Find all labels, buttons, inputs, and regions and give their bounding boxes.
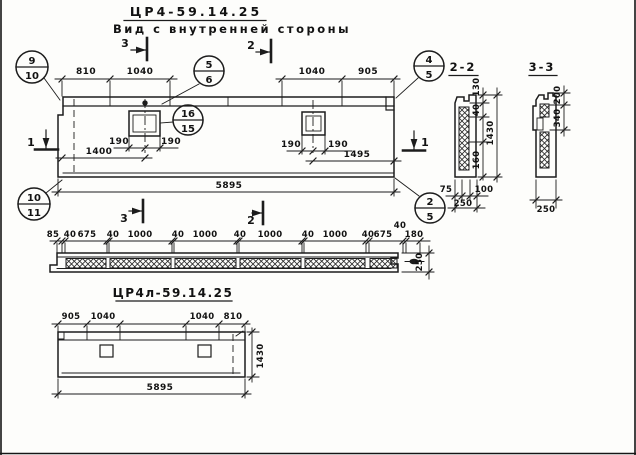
section-3-3-insulation-top <box>540 104 549 117</box>
svg-text:9: 9 <box>29 56 36 67</box>
svg-text:2: 2 <box>247 214 255 227</box>
callout-4-5: 4 5 <box>396 51 444 98</box>
svg-text:10: 10 <box>25 71 39 82</box>
dim-1000: 1000 <box>193 230 218 240</box>
dim-1000: 1000 <box>258 230 283 240</box>
dim-100: 100 <box>475 185 494 195</box>
dim-40: 40 <box>362 230 374 240</box>
dim-40: 40 <box>172 230 184 240</box>
dim-5895: 5895 <box>147 383 174 393</box>
dim-40: 40 <box>64 230 76 240</box>
dim-5895: 5895 <box>216 181 243 191</box>
drawing-sheet: ЦР4-59.14.25 Вид с внутренней стороны 81… <box>0 0 636 455</box>
dim-1040: 1040 <box>127 67 154 77</box>
dim-1040: 1040 <box>190 312 215 322</box>
dim-1040: 1040 <box>91 312 116 322</box>
view-label: Вид с внутренней стороны <box>113 22 351 36</box>
bottom-view-code: ЦР4л-59.14.25 <box>113 286 234 300</box>
svg-text:2: 2 <box>427 197 434 208</box>
bottom-panel-corner-notch <box>58 333 64 339</box>
dim-160: 160 <box>472 151 482 170</box>
dim-250: 250 <box>537 205 556 215</box>
dim-1495: 1495 <box>344 150 371 160</box>
top-dim-extensions <box>62 81 394 97</box>
panel-right-notch <box>386 97 394 110</box>
dim-250: 250 <box>415 253 425 272</box>
svg-text:5: 5 <box>427 212 434 223</box>
callout-2-5: 2 5 <box>395 178 445 223</box>
section-mark-1-right: 1 <box>403 131 429 151</box>
dim-85: 85 <box>47 230 59 240</box>
section-mark-1-left: 1 <box>27 130 58 150</box>
section-2-2-insulation <box>459 107 469 170</box>
dim-string-extensions <box>57 243 420 253</box>
dim-190: 190 <box>109 137 129 147</box>
section-mark-2-bottom: 2 <box>247 202 263 227</box>
callout-16-15: 16 15 <box>160 105 203 135</box>
section-mark-3-bottom: 3 <box>120 200 143 225</box>
bottom-panel-joints <box>87 332 219 340</box>
title-block: ЦР4-59.14.25 Вид с внутренней стороны <box>113 4 351 36</box>
main-elevation-view: 810 1040 1040 905 190 190 190 190 1400 1… <box>16 37 445 227</box>
bottom-dim-extensions <box>58 326 245 332</box>
dim-675: 675 <box>374 230 393 240</box>
bottom-opening-1 <box>100 345 113 357</box>
dim-180: 180 <box>405 230 424 240</box>
plan-strip-view: 250 <box>50 246 434 279</box>
section-3-3-title: 3-3 <box>529 60 556 74</box>
section-mark-2-top: 2 <box>247 39 271 62</box>
panel-code-title: ЦР4-59.14.25 <box>130 4 262 19</box>
dim-190: 190 <box>328 140 348 150</box>
dim-200: 200 <box>553 86 563 105</box>
insulation-block <box>240 259 301 269</box>
dim-1000: 1000 <box>323 230 348 240</box>
svg-text:16: 16 <box>181 109 195 120</box>
plan-dim-string: 85 40 675 40 1000 40 1000 40 1000 40 100… <box>47 221 430 253</box>
svg-text:3: 3 <box>120 212 128 225</box>
insulation-block <box>110 259 171 269</box>
section-mark-3-top: 3 <box>121 37 147 60</box>
svg-text:2: 2 <box>247 39 255 52</box>
svg-text:4: 4 <box>426 55 433 66</box>
dim-130: 130 <box>472 78 482 97</box>
dim-75: 75 <box>440 185 452 195</box>
dim-810: 810 <box>224 312 243 322</box>
svg-text:1: 1 <box>27 136 35 149</box>
dim-40: 40 <box>107 230 119 240</box>
dim-1430: 1430 <box>486 121 496 146</box>
svg-text:6: 6 <box>206 75 213 86</box>
callout-10-11: 10 11 <box>18 180 62 220</box>
insulation-block <box>66 259 106 269</box>
dim-905: 905 <box>358 67 378 77</box>
svg-text:15: 15 <box>181 124 195 135</box>
dim-1400: 1400 <box>86 147 113 157</box>
svg-text:5: 5 <box>426 70 433 81</box>
dim-190: 190 <box>161 137 181 147</box>
dim-1040: 1040 <box>299 67 326 77</box>
dim-40: 40 <box>302 230 314 240</box>
section-2-2: 2-2 130 40 160 1430 75 100 250 <box>440 60 502 212</box>
section-3-3-insulation <box>540 132 549 168</box>
insulation-block <box>305 259 365 269</box>
section-3-3-slot <box>537 118 543 130</box>
opening-2 <box>302 112 325 135</box>
dim-905: 905 <box>62 312 81 322</box>
section-2-2-title: 2-2 <box>450 60 477 74</box>
insulation-block <box>370 259 397 269</box>
dim-190: 190 <box>281 140 301 150</box>
insulation-block <box>175 259 236 269</box>
engineering-drawing: ЦР4-59.14.25 Вид с внутренней стороны 81… <box>0 0 636 455</box>
bottom-panel-outline <box>58 332 245 377</box>
opening-1-inner <box>133 115 156 132</box>
dim-340: 340 <box>553 109 563 128</box>
dim-40: 40 <box>472 104 482 116</box>
opening-2-inner <box>306 116 321 131</box>
dim-40: 40 <box>234 230 246 240</box>
dim-250: 250 <box>454 199 473 209</box>
callout-9-10: 9 10 <box>16 51 60 100</box>
bottom-elevation-view: ЦР4л-59.14.25 905 1040 1040 810 1430 589… <box>52 286 266 398</box>
svg-text:10: 10 <box>27 193 41 204</box>
bottom-opening-2 <box>198 345 211 357</box>
svg-text:1: 1 <box>421 136 429 149</box>
svg-text:3: 3 <box>121 37 129 50</box>
svg-text:11: 11 <box>27 208 41 219</box>
dim-1000: 1000 <box>128 230 153 240</box>
dim-1430: 1430 <box>256 344 266 369</box>
dim-675: 675 <box>78 230 97 240</box>
dim-810: 810 <box>76 67 96 77</box>
svg-text:5: 5 <box>206 60 213 71</box>
centerline-dot <box>142 100 147 105</box>
section-3-3: 3-3 200 340 250 <box>529 60 570 215</box>
